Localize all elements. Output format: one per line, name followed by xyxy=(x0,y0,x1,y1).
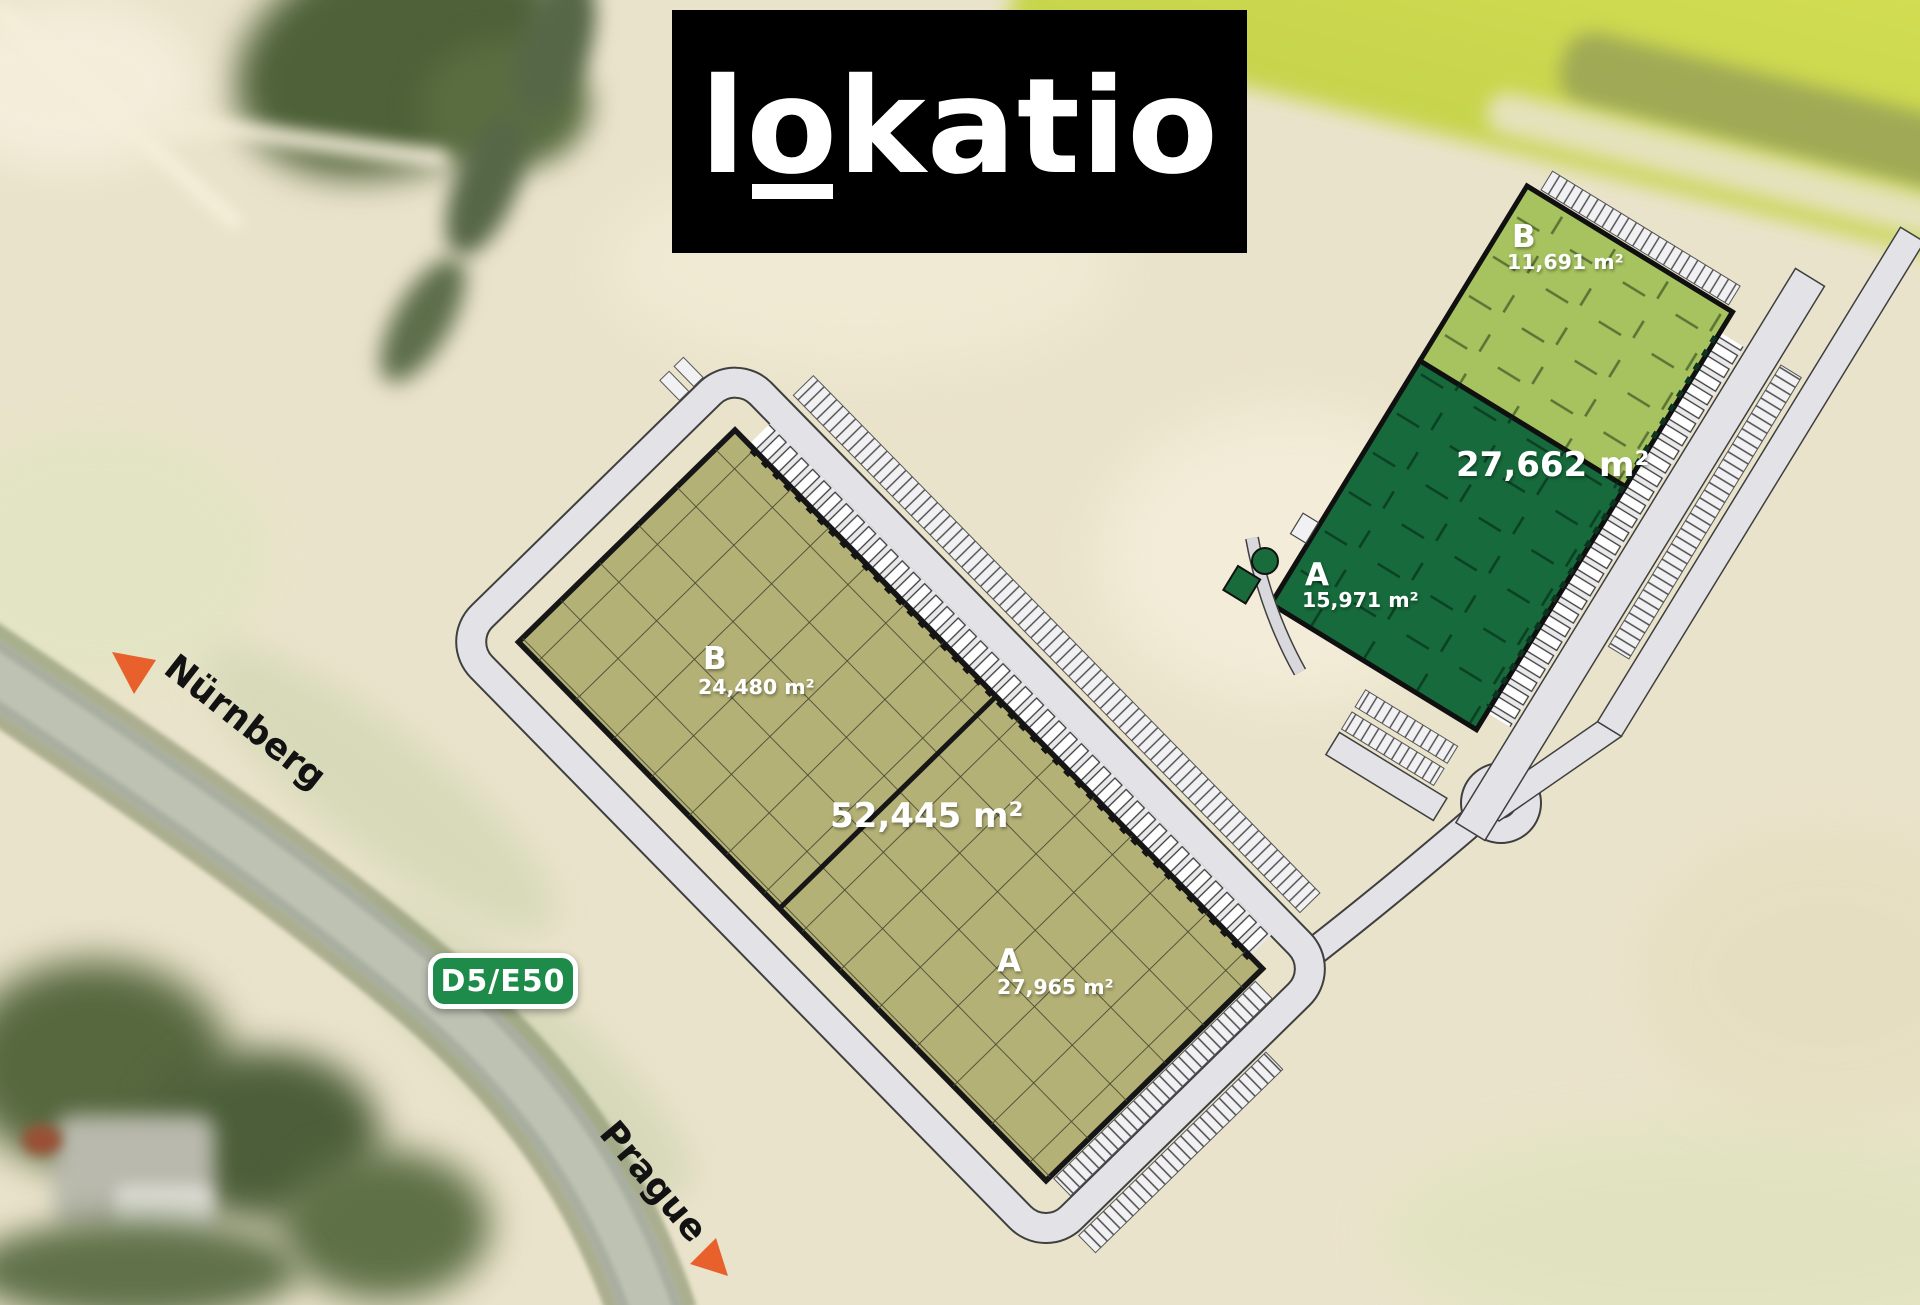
olive-a-letter: A xyxy=(997,943,1021,979)
olive-b-area: 24,480 m² xyxy=(698,675,815,699)
logo-text-rest: katio xyxy=(838,50,1219,204)
logo-underlined-o: o xyxy=(746,61,838,193)
access-roads xyxy=(1316,690,1541,950)
map-stage: Nürnberg Prague B 24,480 m² 52,445 m² A … xyxy=(0,0,1920,1305)
green-total-area: 27,662 m² xyxy=(1456,445,1649,485)
nurnberg-direction-arrow-icon xyxy=(112,652,156,694)
green-a-area: 15,971 m² xyxy=(1302,588,1419,612)
olive-a-area: 27,965 m² xyxy=(997,975,1114,999)
olive-b-letter: B xyxy=(703,641,727,677)
retention-tank-icon xyxy=(1252,548,1278,574)
road-sign-badge: D5/E50 xyxy=(428,953,578,1009)
olive-total-area: 52,445 m² xyxy=(830,796,1023,836)
prague-direction-arrow-icon xyxy=(690,1238,728,1276)
logo-text-pre: l xyxy=(700,50,746,204)
road-sign-label: D5/E50 xyxy=(441,964,566,999)
logo-text: lokatio xyxy=(700,61,1219,193)
logo: lokatio xyxy=(672,10,1247,253)
green-b-area: 11,691 m² xyxy=(1507,250,1624,274)
